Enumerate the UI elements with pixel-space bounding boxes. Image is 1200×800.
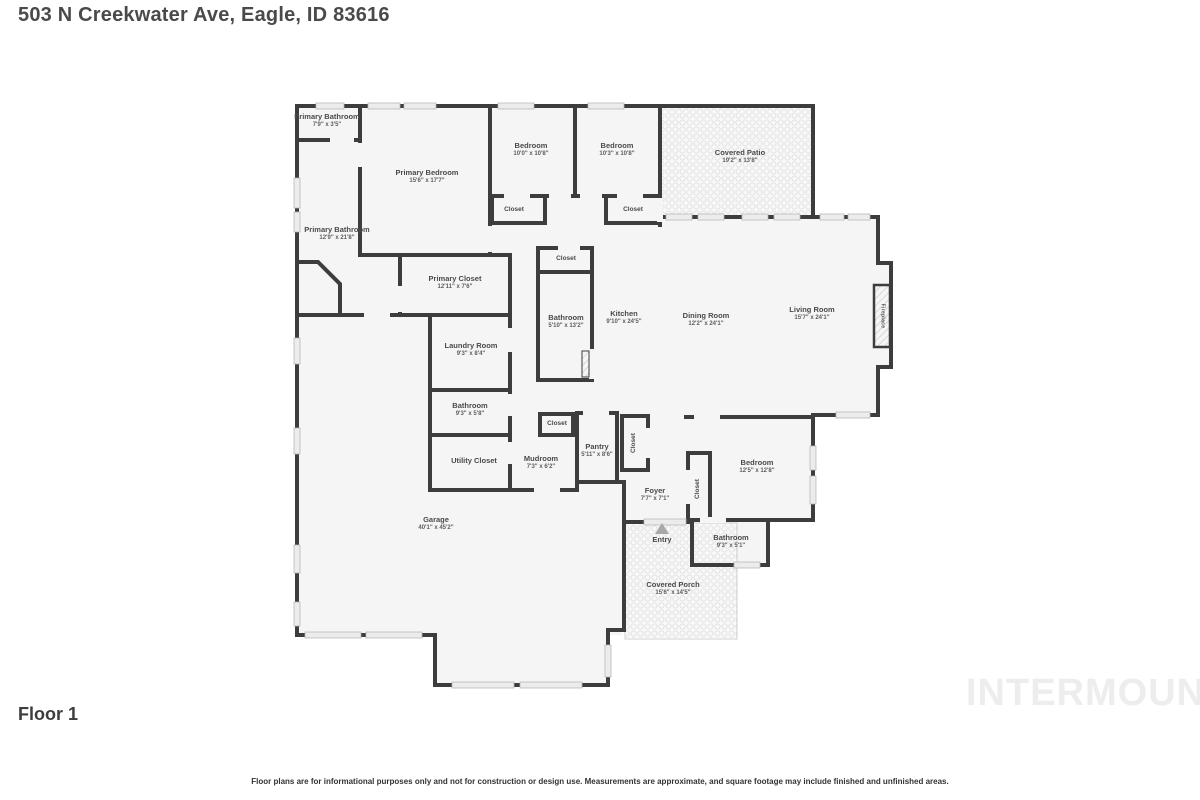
- room-label-closet-bedroom-2: Closet: [623, 206, 643, 214]
- shower-door-strip: [582, 351, 589, 377]
- room-label-covered-porch: Covered Porch 15'6" x 14'5": [646, 580, 699, 598]
- room-label-pantry: Pantry 5'11" x 8'6": [581, 442, 613, 460]
- room-label-bedroom-2: Bedroom 10'3" x 10'8": [599, 141, 634, 159]
- room-label-garage: Garage 40'1" x 45'2": [418, 515, 453, 533]
- room-label-closet-pantry: Closet: [630, 433, 638, 453]
- room-label-closet-foyer: Closet: [694, 479, 702, 499]
- room-label-living-room: Living Room 15'7" x 24'1": [789, 305, 834, 323]
- room-label-closet-mudroom: Closet: [547, 420, 567, 428]
- disclaimer: Floor plans are for informational purpos…: [0, 777, 1200, 786]
- floor-label: Floor 1: [18, 704, 78, 725]
- room-label-foyer: Foyer 7'7" x 7'1": [641, 486, 670, 504]
- watermark: INTERMOUNTAIN: [966, 672, 1200, 715]
- room-label-mudroom: Mudroom 7'3" x 6'2": [524, 454, 558, 472]
- room-label-bathroom-entry: Bathroom 9'3" x 5'1": [713, 533, 748, 551]
- room-label-closet-hall: Closet: [556, 255, 576, 263]
- room-label-primary-closet: Primary Closet 12'11" x 7'6": [429, 274, 482, 292]
- floor-plan-page: 503 N Creekwater Ave, Eagle, ID 83616: [0, 0, 1200, 800]
- room-label-bathroom-hall: Bathroom 5'10" x 13'2": [548, 313, 583, 331]
- room-label-laundry-room: Laundry Room 9'3" x 8'4": [445, 341, 498, 359]
- room-label-utility-closet: Utility Closet: [451, 456, 497, 466]
- room-label-bedroom-3: Bedroom 12'5" x 12'8": [739, 458, 774, 476]
- room-label-entry: Entry: [652, 535, 671, 545]
- room-label-dining-room: Dining Room 12'2" x 24'1": [683, 311, 730, 329]
- room-label-covered-patio: Covered Patio 19'2" x 13'8": [715, 148, 765, 166]
- room-label-bedroom-1: Bedroom 10'0" x 10'8": [513, 141, 548, 159]
- room-label-primary-bathroom-small: Primary Bathroom 7'9" x 3'5": [294, 112, 359, 130]
- room-label-kitchen: Kitchen 9'10" x 24'5": [606, 309, 641, 327]
- room-label-fireplace: Fireplace: [879, 304, 886, 329]
- room-label-bathroom-laundry: Bathroom 9'3" x 5'8": [452, 401, 487, 419]
- room-label-closet-bedroom-1: Closet: [504, 206, 524, 214]
- room-label-primary-bathroom: Primary Bathroom 12'9" x 21'8": [304, 225, 369, 243]
- room-label-primary-bedroom: Primary Bedroom 15'6" x 17'7": [396, 168, 459, 186]
